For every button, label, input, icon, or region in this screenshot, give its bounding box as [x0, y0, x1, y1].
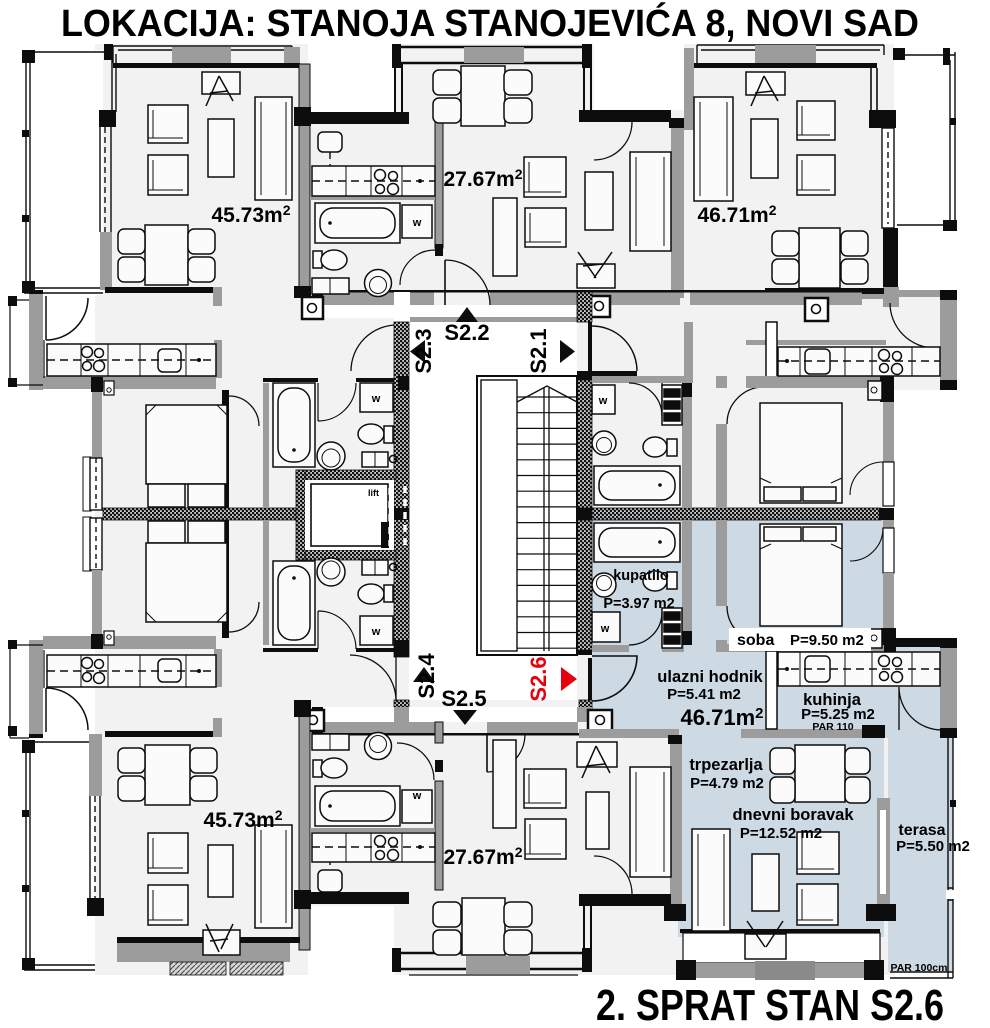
svg-text:ulazni hodnik: ulazni hodnik — [657, 668, 763, 686]
svg-text:S2.5: S2.5 — [441, 686, 486, 711]
svg-text:45.73m2: 45.73m2 — [211, 202, 290, 227]
svg-text:2. SPRAT STAN S2.6: 2. SPRAT STAN S2.6 — [596, 981, 944, 1028]
svg-text:terasa: terasa — [898, 822, 945, 839]
svg-text:w: w — [371, 626, 381, 638]
svg-text:w: w — [371, 393, 381, 405]
svg-text:P=5.50 m2: P=5.50 m2 — [896, 838, 970, 855]
svg-text:P=4.79 m2: P=4.79 m2 — [690, 775, 764, 792]
svg-text:w: w — [412, 217, 422, 229]
svg-text:kupatilo: kupatilo — [613, 568, 669, 584]
svg-text:27.67m2: 27.67m2 — [443, 166, 522, 191]
svg-text:S2.2: S2.2 — [444, 320, 489, 345]
svg-text:45.73m2: 45.73m2 — [203, 807, 282, 832]
svg-text:LOKACIJA: STANOJA STANOJEVIĆA: LOKACIJA: STANOJA STANOJEVIĆA 8, NOVI SA… — [61, 1, 919, 45]
svg-text:P=3.97 m2: P=3.97 m2 — [603, 596, 674, 612]
svg-text:w: w — [600, 623, 610, 635]
svg-text:PAR 100cm: PAR 100cm — [890, 962, 947, 974]
svg-text:S2.4: S2.4 — [414, 653, 439, 699]
svg-text:46.71m2: 46.71m2 — [681, 705, 764, 730]
svg-text:P=12.52 m2: P=12.52 m2 — [740, 825, 822, 842]
svg-text:lift: lift — [368, 488, 379, 498]
svg-text:P=5.41 m2: P=5.41 m2 — [667, 686, 741, 703]
svg-text:w: w — [598, 395, 608, 407]
svg-text:dnevni boravak: dnevni boravak — [732, 806, 854, 824]
svg-text:P=9.50 m2: P=9.50 m2 — [790, 632, 864, 649]
svg-text:S2.3: S2.3 — [411, 328, 436, 373]
svg-text:soba: soba — [737, 632, 774, 649]
svg-text:S2.6: S2.6 — [526, 656, 551, 701]
svg-text:w: w — [412, 790, 422, 802]
svg-text:S2.1: S2.1 — [526, 328, 551, 373]
svg-text:PAR 110: PAR 110 — [812, 721, 853, 733]
svg-text:trpezarlja: trpezarlja — [689, 756, 763, 774]
svg-text:46.71m2: 46.71m2 — [697, 202, 776, 227]
svg-text:27.67m2: 27.67m2 — [443, 844, 522, 869]
